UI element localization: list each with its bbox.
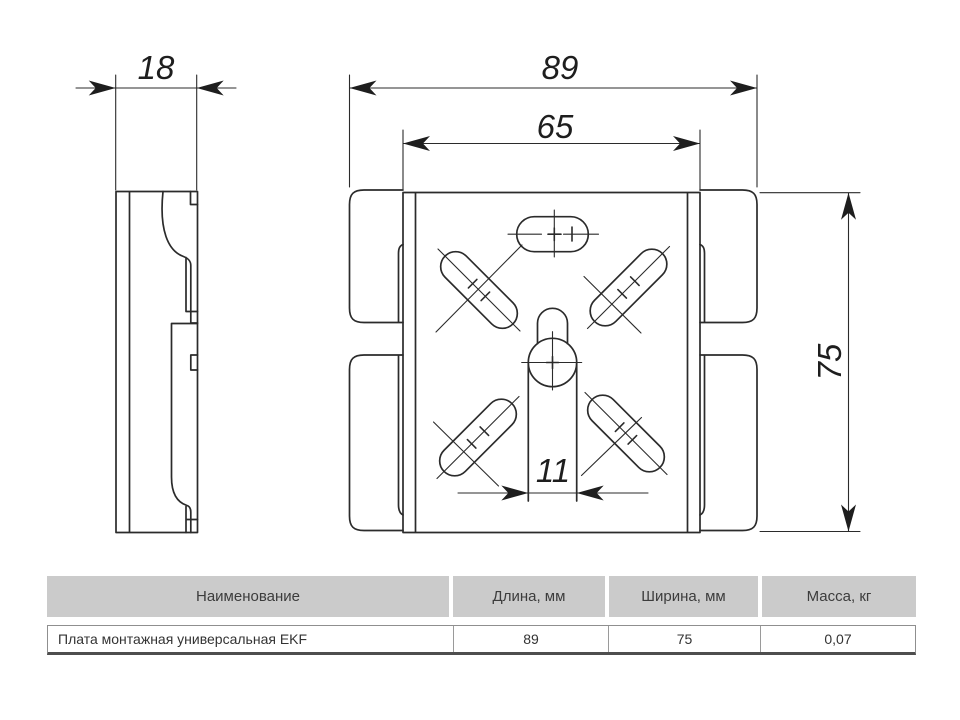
dimension-inner-width: 65 (403, 108, 700, 189)
cell-weight: 0,07 (760, 626, 915, 652)
slot-top-left (427, 238, 530, 341)
technical-drawing: 18 89 65 75 11 (0, 0, 960, 565)
tab-top-right (700, 190, 757, 323)
spec-table: Наименование Длина, мм Ширина, мм Масса,… (47, 576, 916, 655)
tab-top-left (350, 190, 404, 323)
dimension-height: 75 (760, 193, 860, 532)
slot-bottom-right (574, 382, 677, 485)
header-weight: Масса, кг (762, 576, 916, 617)
header-name: Наименование (47, 576, 449, 617)
top-slot (508, 210, 599, 257)
header-width: Ширина, мм (609, 576, 758, 617)
cell-product-name: Плата монтажная универсальная EKF (48, 626, 453, 652)
dimension-side-thickness: 18 (76, 49, 236, 190)
tab-bottom-right (700, 355, 757, 531)
dimension-label: 65 (537, 108, 574, 145)
dimension-keyhole-width: 11 (458, 452, 648, 501)
side-view (116, 192, 198, 533)
slot-bottom-left (426, 386, 529, 489)
cell-length: 89 (453, 626, 608, 652)
table-row: Плата монтажная универсальная EKF 89 75 … (47, 625, 916, 655)
drawing-canvas: 18 89 65 75 11 Наимено (0, 0, 960, 720)
dimension-label: 89 (542, 49, 579, 86)
cell-width: 75 (608, 626, 760, 652)
slot-top-right (577, 236, 680, 339)
tab-bottom-left (350, 355, 404, 531)
dimension-label: 18 (138, 49, 175, 86)
dimension-label: 75 (811, 343, 848, 380)
spec-table-header: Наименование Длина, мм Ширина, мм Масса,… (47, 576, 916, 617)
header-length: Длина, мм (453, 576, 605, 617)
dimension-label: 11 (536, 452, 570, 489)
